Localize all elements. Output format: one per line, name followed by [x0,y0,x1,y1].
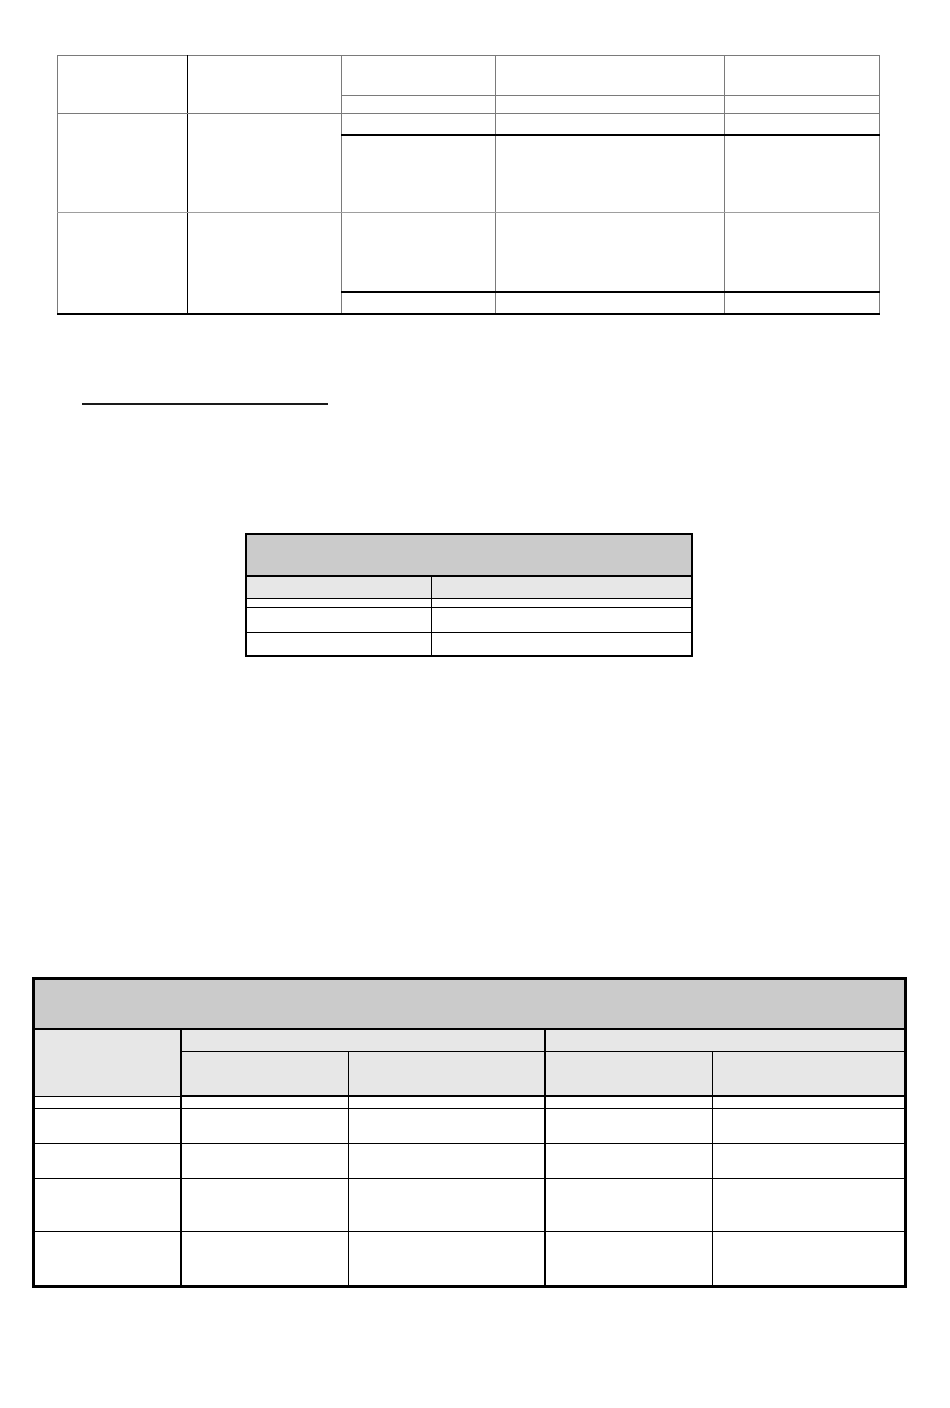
table-cell [349,1096,545,1108]
table-header-cell [181,1051,349,1096]
table-cell [246,607,431,632]
table-cell [349,1143,545,1178]
table-row [58,56,880,96]
table-cell [496,213,725,292]
table-header-cell [246,576,431,598]
table-cell [342,114,496,135]
table-cell [725,292,880,314]
table-cell [181,1231,349,1286]
table-cell [181,1143,349,1178]
table-cell [725,213,880,292]
table-cell [545,1231,713,1286]
table-cell [545,1108,713,1143]
table-cell [246,632,431,656]
table-cell [34,1143,181,1178]
table-cell [431,607,692,632]
table-cell [246,598,431,607]
table-header-cell [545,1051,713,1096]
table-cell [713,1143,906,1178]
table-row [58,114,880,135]
table-cell [496,56,725,96]
table-row [34,1096,906,1108]
table-cell [496,95,725,113]
table-cell [58,56,188,114]
table-cell [181,1096,349,1108]
table-cell [545,1143,713,1178]
table-cell [496,114,725,135]
table-cell [545,1178,713,1231]
table-cell [34,1231,181,1286]
table-cell [725,114,880,135]
table-cell [496,135,725,213]
table-cell [188,56,342,114]
table-cell [725,135,880,213]
table-row [58,213,880,292]
table-header-cell [713,1051,906,1096]
table-row [34,1108,906,1143]
table-cell [188,213,342,315]
table-cell [725,95,880,113]
table-row [246,607,692,632]
table-cell [342,292,496,314]
table-cell [496,292,725,314]
middle-table [245,533,693,657]
table-cell [34,1096,181,1108]
table-row [34,1143,906,1178]
top-table-container [57,55,880,315]
table-cell [34,1108,181,1143]
table-title-row [34,979,906,1029]
document-page [0,0,950,1408]
table-group-header-cell [545,1029,906,1052]
table-cell [713,1178,906,1231]
table-row [34,1231,906,1286]
table-cell [725,56,880,96]
table-header-cell [34,1029,181,1097]
bottom-table [32,977,907,1288]
table-title-cell [246,534,692,576]
table-title-cell [34,979,906,1029]
table-cell [349,1178,545,1231]
table-cell [342,95,496,113]
table-cell [431,598,692,607]
table-cell [545,1096,713,1108]
table-row [246,598,692,607]
table-cell [58,213,188,315]
table-header-cell [431,576,692,598]
table-cell [34,1178,181,1231]
table-cell [342,213,496,292]
table-group-header-row [34,1029,906,1052]
table-title-row [246,534,692,576]
table-cell [349,1108,545,1143]
table-cell [58,114,188,213]
bottom-table-container [32,977,907,1288]
heading-underline-rule [82,403,328,405]
middle-table-container [245,533,693,657]
table-cell [431,632,692,656]
table-cell [181,1178,349,1231]
table-group-header-cell [181,1029,545,1052]
table-cell [713,1096,906,1108]
table-cell [342,56,496,96]
table-cell [713,1108,906,1143]
table-cell [713,1231,906,1286]
table-header-row [246,576,692,598]
table-header-cell [349,1051,545,1096]
top-table [57,55,880,315]
table-cell [342,135,496,213]
table-row [34,1178,906,1231]
table-cell [349,1231,545,1286]
table-row [246,632,692,656]
table-cell [188,114,342,213]
table-cell [181,1108,349,1143]
